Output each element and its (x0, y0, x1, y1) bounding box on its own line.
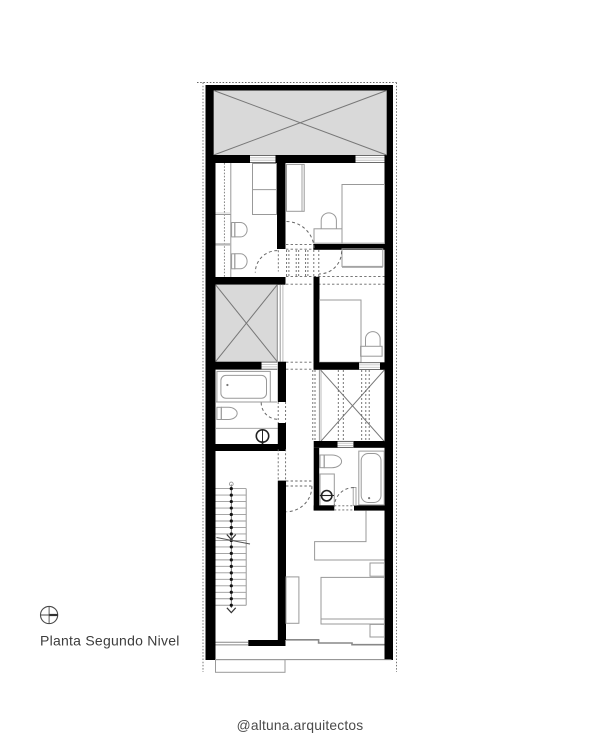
svg-text:@altuna.arquitectos: @altuna.arquitectos (237, 718, 364, 733)
svg-text:Planta Segundo Nivel: Planta Segundo Nivel (40, 633, 180, 649)
